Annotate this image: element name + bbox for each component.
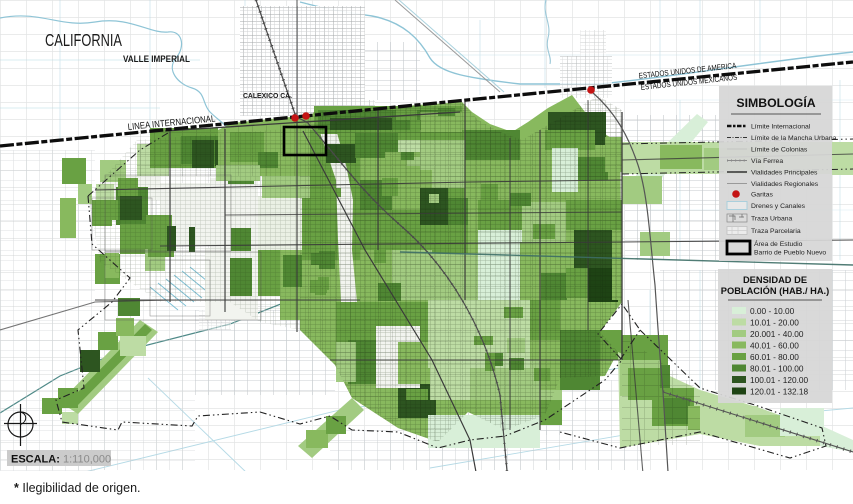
- svg-text:Área de Estudio: Área de Estudio: [754, 239, 803, 248]
- svg-text:Límite Internacional: Límite Internacional: [751, 124, 811, 131]
- svg-text:Vialidades Principales: Vialidades Principales: [751, 170, 818, 177]
- svg-text:10.01 - 20.00: 10.01 - 20.00: [750, 318, 799, 328]
- svg-text:Traza Urbana: Traza Urbana: [751, 216, 793, 223]
- svg-text:60.01 - 80.00: 60.01 - 80.00: [750, 352, 799, 362]
- svg-text:Límite de la Mancha Urbana: Límite de la Mancha Urbana: [751, 135, 837, 142]
- svg-text:Vía Ferrea: Vía Ferrea: [751, 158, 783, 165]
- svg-text:SIMBOLOGÍA: SIMBOLOGÍA: [736, 95, 815, 110]
- svg-text:40.01 - 60.00: 40.01 - 60.00: [750, 341, 799, 351]
- svg-text:120.01 - 132.18: 120.01 - 132.18: [750, 387, 809, 397]
- svg-text:CALEXICO CA.: CALEXICO CA.: [243, 91, 292, 100]
- svg-text:Vialidades Regionales: Vialidades Regionales: [751, 181, 819, 188]
- svg-text:Límite de Colonias: Límite de Colonias: [751, 147, 808, 154]
- svg-text:POBLACIÓN (HAB./ HA.): POBLACIÓN (HAB./ HA.): [721, 285, 829, 296]
- svg-text:20.001 - 40.00: 20.001 - 40.00: [750, 329, 804, 339]
- svg-text:VALLE IMPERIAL: VALLE IMPERIAL: [123, 54, 190, 65]
- svg-text:1:110,000: 1:110,000: [63, 454, 111, 466]
- svg-text:0.00 - 10.00: 0.00 - 10.00: [750, 306, 795, 316]
- svg-text:80.01 - 100.00: 80.01 - 100.00: [750, 364, 804, 374]
- svg-text:CALIFORNIA: CALIFORNIA: [45, 30, 122, 50]
- svg-text:100.01 - 120.00: 100.01 - 120.00: [750, 375, 809, 385]
- svg-text:Traza Parcelaria: Traza Parcelaria: [751, 228, 801, 235]
- svg-text:DENSIDAD DE: DENSIDAD DE: [743, 275, 807, 285]
- svg-text:Garitas: Garitas: [751, 192, 774, 199]
- svg-text:Drenes y Canales: Drenes y Canales: [751, 203, 806, 210]
- svg-text:ESCALA:: ESCALA:: [11, 454, 60, 466]
- svg-text:Barrio de Pueblo Nuevo: Barrio de Pueblo Nuevo: [754, 250, 826, 257]
